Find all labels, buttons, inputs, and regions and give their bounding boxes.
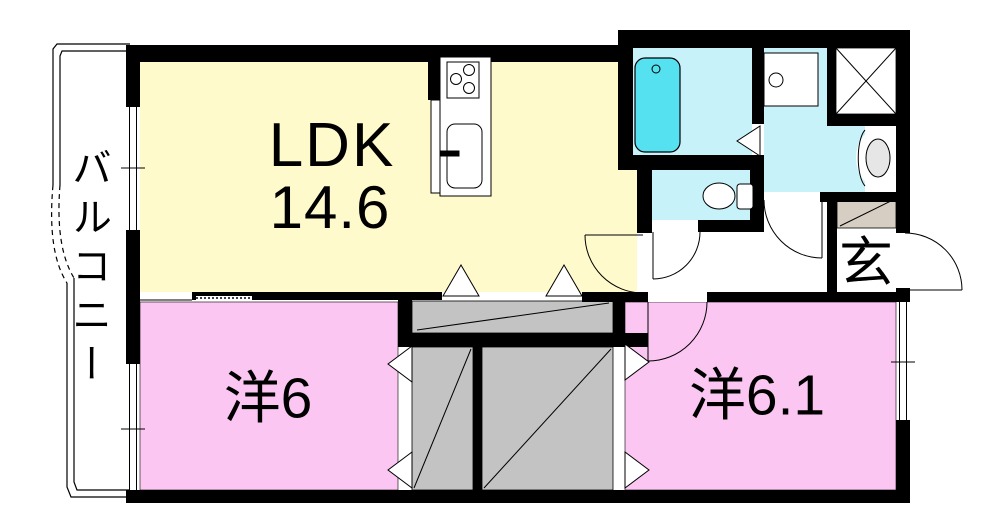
washroom-door: [764, 200, 822, 258]
ldk-size-label: 14.6: [270, 178, 391, 238]
floorplan: LDK 14.6 洋6 洋6.1 玄 バルコニー: [0, 0, 989, 529]
toilet-door-opening: [652, 220, 698, 232]
toilet-door: [653, 232, 700, 279]
entrance-label: 玄: [839, 236, 893, 290]
ldk-label: LDK: [269, 115, 396, 177]
vanity-basin-icon: [856, 130, 896, 186]
bathtub-icon: [635, 58, 680, 152]
balcony-label: バルコニー: [68, 147, 108, 392]
west-room-2-door-opening: [648, 292, 707, 302]
washbasin-icon: [764, 53, 818, 106]
toilet-icon: [703, 183, 753, 209]
kitchen-unit-icon: [431, 57, 491, 196]
west-room-2-label: 洋6.1: [689, 368, 825, 425]
entrance-door: [905, 233, 962, 290]
faucet-icon: [440, 151, 459, 156]
west-room-1-label: 洋6: [224, 371, 313, 428]
